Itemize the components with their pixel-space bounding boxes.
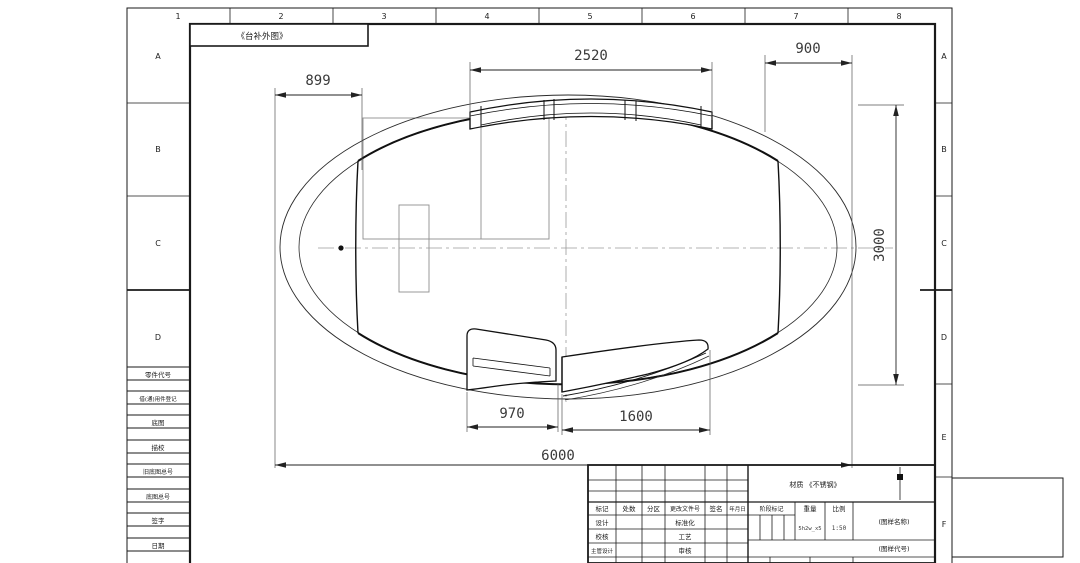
field-part-code: 零件代号 (145, 370, 172, 379)
role-process: 工艺 (679, 533, 693, 541)
field-base-no: 底图总号 (146, 493, 170, 501)
zone-row-a-right: A (941, 52, 947, 61)
dim-label-900: 900 (795, 41, 820, 57)
zone-row-b-left: B (155, 145, 161, 154)
zone-col-7: 7 (793, 12, 798, 21)
dim-label-1600: 1600 (619, 409, 653, 425)
zone-row-d-left: D (155, 333, 161, 342)
role-design: 设计 (596, 518, 610, 527)
left-field-column: 零件代号 借(通)用件登记 底图 描校 旧底图总号 底图总号 签字 日期 (127, 367, 190, 563)
bottom-left-panel (467, 329, 556, 390)
field-signature: 签字 (152, 516, 166, 525)
header-mark: 标记 (596, 504, 610, 513)
dim-label-970: 970 (499, 406, 524, 422)
center-point-dot (338, 245, 343, 250)
zone-col-2: 2 (278, 12, 283, 21)
header-count: 处数 (623, 504, 637, 513)
field-date: 日期 (152, 542, 166, 550)
header-change-file: 更改文件号 (670, 505, 700, 513)
zone-col-4: 4 (484, 12, 489, 21)
dim-label-3000: 3000 (872, 228, 888, 262)
zone-row-e-right: E (941, 433, 946, 442)
sheet-border (127, 8, 952, 563)
construction-rect-large (363, 118, 549, 239)
header-date: 年月日 (729, 505, 746, 513)
dimension-lines (275, 63, 896, 465)
outer-ellipse (280, 95, 856, 399)
view-label-box: 《台补外图》 (190, 24, 368, 46)
zone-row-d-right: D (941, 333, 947, 342)
dim-label-899: 899 (305, 73, 330, 89)
drawing-name: (图样名称) (878, 517, 909, 526)
role-standardize: 标准化 (675, 518, 695, 527)
material-note: 材质 《不锈钢》 (789, 480, 840, 489)
field-base-drawing: 底图 (152, 418, 165, 427)
zone-row-c-left: C (155, 239, 161, 248)
scale-value: 1:50 (832, 525, 847, 532)
dim-label-2520: 2520 (574, 48, 608, 64)
drawing-code: (图样代号) (878, 544, 909, 553)
role-check: 校核 (596, 532, 610, 541)
weight-value: 5h2w_x5 (798, 526, 821, 532)
stage-mark-label: 阶段标记 (759, 505, 783, 513)
construction-rect-small (399, 205, 429, 292)
zone-col-8: 8 (896, 12, 901, 21)
left-end-flat (356, 161, 358, 333)
weight-label: 重量 (804, 505, 818, 513)
cad-drawing-sheet: 1 2 3 4 5 6 7 8 A B C D A B C D E F (0, 0, 1080, 563)
zone-row-a-left: A (155, 52, 161, 61)
dim-label-6000: 6000 (541, 448, 575, 464)
field-trace-check: 描校 (152, 443, 166, 452)
role-chief-design: 主管设计 (591, 547, 614, 555)
title-block-mark (897, 474, 903, 480)
title-block-extension-box (952, 478, 1063, 557)
ellipse-outline (280, 95, 856, 399)
role-review: 审核 (679, 546, 693, 555)
drawing-canvas: 1 2 3 4 5 6 7 8 A B C D A B C D E F (0, 0, 1080, 563)
inner-ellipse (299, 110, 837, 384)
header-zone: 分区 (647, 504, 661, 513)
top-bench-panel (470, 99, 712, 129)
right-end-flat (778, 161, 780, 333)
zone-col-3: 3 (381, 12, 386, 21)
zone-col-1: 1 (175, 12, 180, 21)
zone-col-6: 6 (690, 12, 695, 21)
zone-row-c-right: C (941, 239, 947, 248)
zone-row-f-right: F (942, 520, 947, 529)
zone-strip-left: A B C D (127, 52, 190, 342)
title-block: 材质 《不锈钢》 标记 处数 分区 更改文件号 签名 年月日 设计 标准化 校核… (588, 465, 935, 563)
view-label: 《台补外图》 (236, 31, 287, 42)
zone-strip-top: 1 2 3 4 5 6 7 8 (175, 8, 901, 24)
field-old-base-no: 旧底图总号 (143, 468, 173, 476)
field-borrowed-parts: 借(通)用件登记 (139, 395, 177, 403)
scale-label: 比例 (833, 504, 846, 513)
zone-col-5: 5 (587, 12, 592, 21)
zone-row-b-right: B (941, 145, 947, 154)
header-sign: 签名 (710, 504, 723, 513)
